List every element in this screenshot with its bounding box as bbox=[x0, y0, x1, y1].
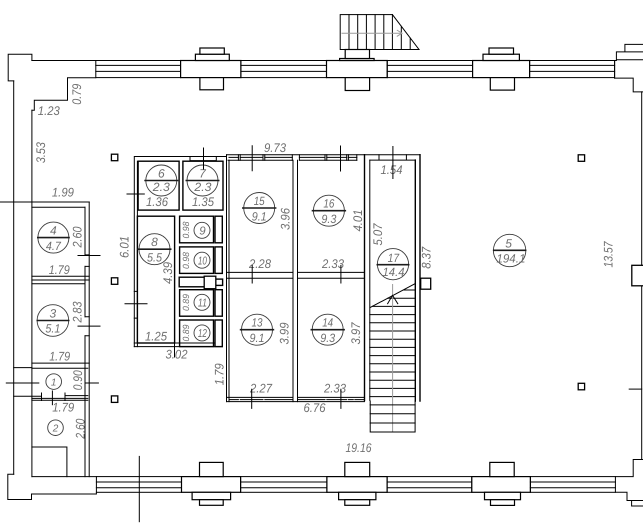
svg-text:11: 11 bbox=[198, 298, 207, 310]
svg-text:19.16: 19.16 bbox=[346, 441, 372, 455]
svg-text:4.39: 4.39 bbox=[161, 262, 175, 284]
svg-text:4: 4 bbox=[50, 224, 57, 238]
svg-text:0.89: 0.89 bbox=[181, 294, 191, 311]
svg-text:3.53: 3.53 bbox=[34, 142, 48, 163]
svg-text:13: 13 bbox=[252, 316, 263, 330]
svg-text:1.79: 1.79 bbox=[52, 401, 74, 415]
svg-text:1: 1 bbox=[51, 377, 57, 388]
svg-text:2: 2 bbox=[52, 423, 59, 434]
svg-text:1.35: 1.35 bbox=[192, 195, 214, 209]
svg-text:13.57: 13.57 bbox=[602, 241, 616, 268]
svg-text:14.4: 14.4 bbox=[383, 265, 405, 279]
svg-text:9.73: 9.73 bbox=[264, 141, 286, 155]
svg-text:2.3: 2.3 bbox=[152, 180, 170, 194]
svg-text:9.3: 9.3 bbox=[320, 331, 335, 345]
svg-text:3.97: 3.97 bbox=[349, 322, 363, 345]
svg-text:2.28: 2.28 bbox=[248, 257, 271, 271]
svg-text:1.36: 1.36 bbox=[146, 195, 168, 209]
svg-text:2.83: 2.83 bbox=[71, 301, 85, 323]
svg-text:9.1: 9.1 bbox=[250, 331, 265, 345]
svg-text:16: 16 bbox=[323, 197, 334, 211]
svg-text:2.3: 2.3 bbox=[193, 180, 211, 194]
svg-text:5.07: 5.07 bbox=[371, 223, 385, 246]
svg-text:0.98: 0.98 bbox=[181, 252, 191, 269]
svg-text:8: 8 bbox=[151, 235, 158, 249]
svg-text:5: 5 bbox=[505, 237, 512, 251]
svg-text:0.98: 0.98 bbox=[181, 222, 191, 239]
svg-text:6.01: 6.01 bbox=[118, 236, 132, 258]
svg-text:2.27: 2.27 bbox=[249, 381, 273, 395]
svg-text:14: 14 bbox=[322, 316, 333, 330]
svg-text:10: 10 bbox=[198, 256, 207, 268]
svg-text:3.99: 3.99 bbox=[278, 322, 292, 344]
svg-text:1.99: 1.99 bbox=[52, 185, 74, 199]
svg-text:1.54: 1.54 bbox=[381, 163, 403, 177]
svg-text:1.23: 1.23 bbox=[38, 104, 60, 118]
svg-text:3.02: 3.02 bbox=[166, 348, 188, 362]
svg-text:0.90: 0.90 bbox=[71, 370, 85, 390]
svg-text:9: 9 bbox=[199, 226, 206, 238]
svg-text:8.37: 8.37 bbox=[420, 246, 434, 269]
svg-text:12: 12 bbox=[198, 328, 207, 340]
svg-text:2.33: 2.33 bbox=[323, 381, 346, 395]
svg-text:17: 17 bbox=[388, 251, 401, 265]
svg-text:5.1: 5.1 bbox=[45, 322, 60, 336]
svg-text:0.89: 0.89 bbox=[181, 325, 191, 342]
svg-text:9.1: 9.1 bbox=[252, 209, 267, 223]
svg-text:2.60: 2.60 bbox=[71, 226, 85, 248]
svg-text:1.79: 1.79 bbox=[49, 349, 70, 363]
svg-text:4.7: 4.7 bbox=[46, 239, 62, 253]
svg-text:1.79: 1.79 bbox=[49, 263, 70, 277]
svg-text:1.79: 1.79 bbox=[212, 363, 226, 385]
svg-text:194.1: 194.1 bbox=[496, 251, 525, 265]
svg-text:5.5: 5.5 bbox=[147, 251, 162, 265]
svg-text:4.01: 4.01 bbox=[351, 210, 365, 232]
svg-text:3: 3 bbox=[50, 307, 57, 321]
svg-text:0.79: 0.79 bbox=[70, 84, 84, 105]
svg-text:9.3: 9.3 bbox=[321, 212, 336, 226]
svg-text:15: 15 bbox=[254, 194, 265, 208]
svg-text:1.25: 1.25 bbox=[145, 330, 167, 344]
svg-text:2.60: 2.60 bbox=[73, 419, 87, 440]
svg-text:6: 6 bbox=[158, 167, 165, 181]
svg-text:6.76: 6.76 bbox=[304, 401, 326, 415]
svg-text:3.96: 3.96 bbox=[279, 208, 293, 230]
